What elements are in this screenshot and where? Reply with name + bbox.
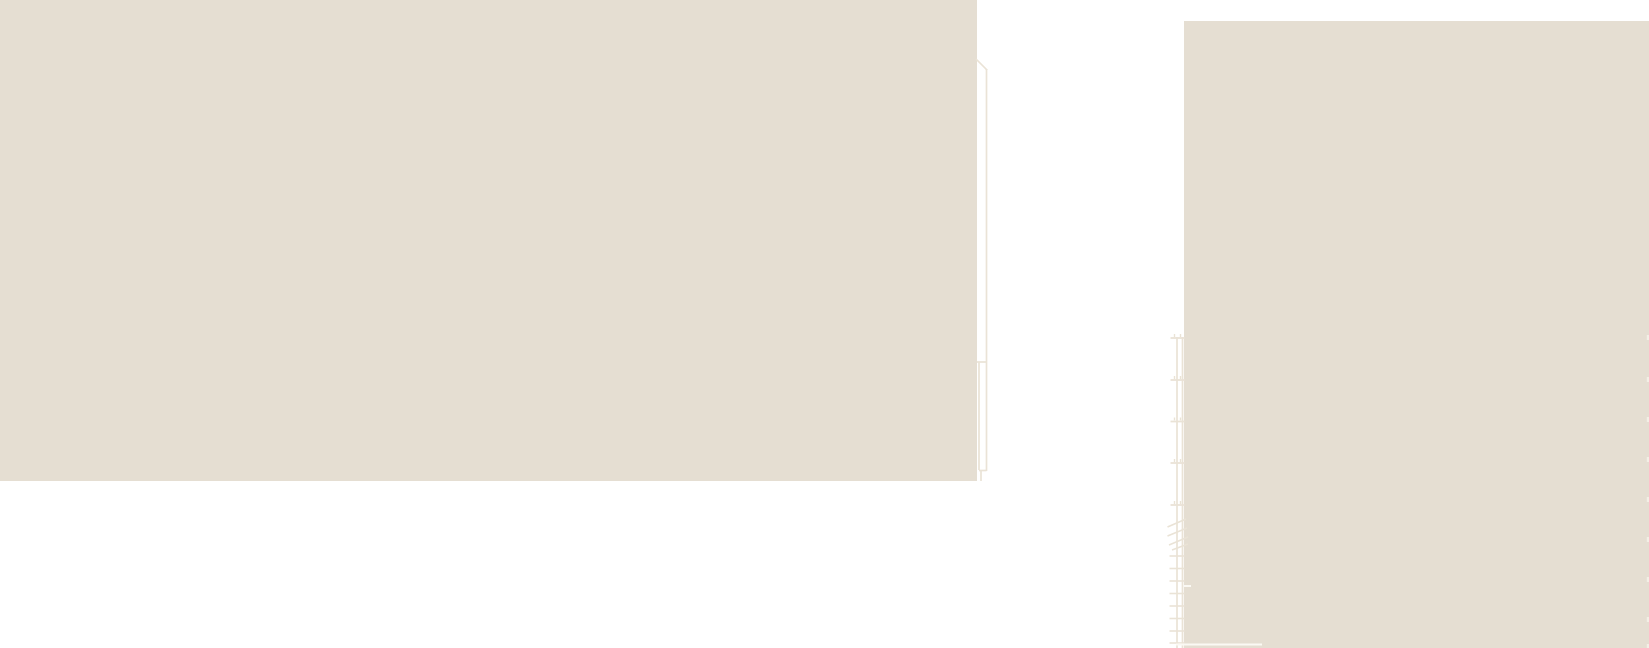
right-building-mass — [1184, 21, 1649, 648]
left-building-mass — [0, 0, 977, 481]
architectural-drawing — [0, 0, 1649, 648]
architectural-plan-canvas — [0, 0, 1649, 648]
shaft-outline-diagonal — [976, 59, 987, 70]
